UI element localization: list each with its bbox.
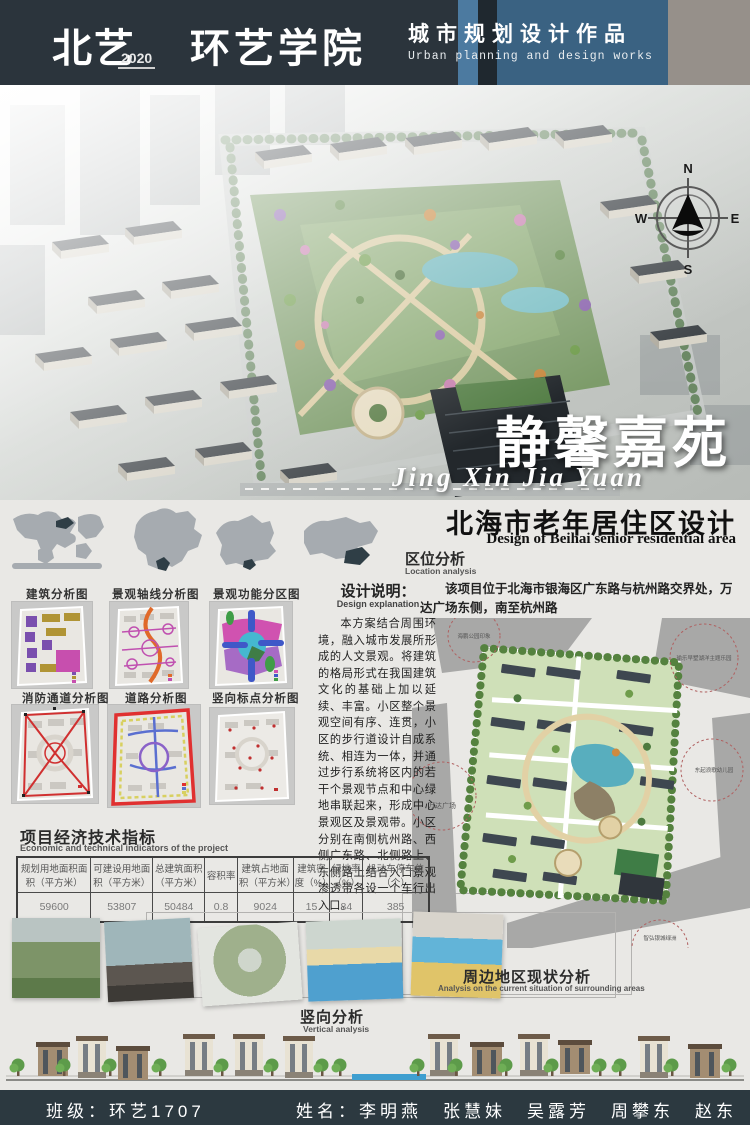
poster-subtitle-en: Design of Beihai senior residential area (486, 531, 736, 548)
project-title-pinyin: Jing Xin Jia Yuan (392, 462, 645, 493)
region-maps (8, 505, 383, 573)
department-name: 环艺学院 (190, 16, 366, 74)
svg-text:N: N (683, 161, 692, 176)
diagram-label-axis: 景观轴线分析图 (112, 586, 200, 602)
site-plan: 海鹏公园印象 瑜乐早墅湖洋主题乐园 万达广场 东起浪歌幼儿园 智弘银城绿洲 (412, 618, 750, 948)
diagram-fire-lane (12, 705, 98, 803)
guangxi-map (216, 515, 276, 570)
svg-text:智弘银城绿洲: 智弘银城绿洲 (643, 934, 677, 942)
location-subtitle: Location analysis (405, 566, 476, 576)
poster: 北艺 2020 环艺学院 城市规划设计作品 Urban planning and… (0, 0, 750, 1125)
location-body: 该项目位于北海市银海区广东路与杭州路交界处，万达广场东侧，南至杭州路 (420, 580, 738, 618)
design-explanation-title: 设计说明： (322, 580, 434, 601)
svg-text:S: S (684, 262, 693, 277)
header-panel-tan (668, 0, 750, 85)
svg-text:瑜乐早墅湖洋主题乐园: 瑜乐早墅湖洋主题乐园 (676, 654, 732, 662)
svg-text:海鹏公园印象: 海鹏公园印象 (457, 632, 491, 640)
indicators-subtitle: Economic and technical indicators of the… (20, 843, 228, 853)
diagram-function-zoning (210, 602, 292, 688)
diagram-vertical-spot (210, 708, 294, 804)
elevation-drawing (0, 1032, 750, 1086)
photo-residential (12, 918, 100, 998)
logo-year: 2020 (118, 50, 155, 69)
poster-category-subtitle: Urban planning and design works (408, 50, 708, 63)
design-explanation-subtitle: Design explanation (322, 599, 434, 609)
beihai-map (304, 517, 378, 565)
names-label: 姓名：李明燕 张慧妹 吴露芳 周攀东 赵东明 (296, 1097, 750, 1125)
indicators-header-row: 规划用地面积面积（平方米） 可建设用地面积（平方米） 总建筑面积（平方米） 容积… (17, 857, 429, 893)
photo-aerial-render (197, 922, 302, 1007)
svg-text:E: E (731, 211, 740, 226)
diagram-label-function: 景观功能分区图 (213, 586, 301, 602)
svg-text:东起浪歌幼儿园: 东起浪歌幼儿园 (695, 766, 734, 774)
svg-text:W: W (635, 211, 648, 226)
diagram-label-building: 建筑分析图 (26, 586, 89, 602)
diagram-label-road: 道路分析图 (125, 690, 188, 706)
photo-waterpark (306, 918, 404, 1001)
header-bar: 北艺 2020 环艺学院 城市规划设计作品 Urban planning and… (0, 0, 750, 85)
poster-category-title: 城市规划设计作品 (408, 18, 658, 48)
surrounding-subtitle: Analysis on the current situation of sur… (438, 984, 645, 993)
diagram-label-vertical-spot: 竖向标点分析图 (212, 690, 300, 706)
china-map (134, 508, 202, 571)
footer-bar: 班级：环艺1707 姓名：李明燕 张慧妹 吴露芳 周攀东 赵东明 (0, 1090, 750, 1125)
diagram-building-analysis (12, 602, 92, 688)
diagram-axis-analysis (110, 602, 188, 688)
diagram-road-analysis (108, 705, 200, 807)
class-label: 班级：环艺1707 (46, 1097, 205, 1122)
diagram-label-fire: 消防通道分析图 (22, 690, 110, 706)
photo-mall (104, 918, 194, 1002)
world-map (12, 511, 104, 569)
